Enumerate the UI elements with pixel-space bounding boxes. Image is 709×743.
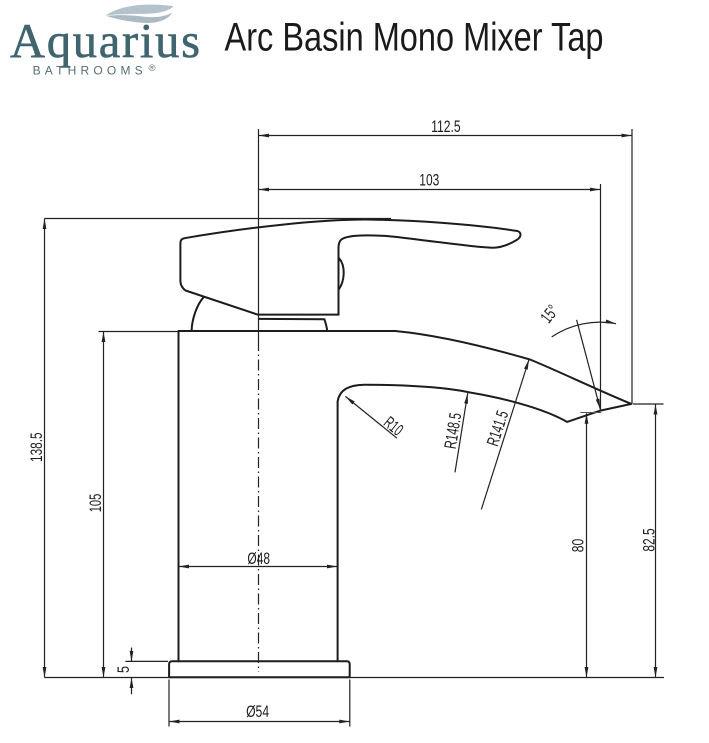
svg-text:138.5: 138.5 — [27, 432, 46, 462]
svg-text:Ø48: Ø48 — [247, 549, 270, 568]
svg-text:Ø54: Ø54 — [246, 702, 269, 721]
svg-text:Arc Basin Mono Mixer Tap: Arc Basin Mono Mixer Tap — [225, 16, 604, 60]
svg-text:R141.5: R141.5 — [483, 408, 512, 448]
svg-text:®: ® — [149, 63, 156, 74]
svg-text:Aquarius: Aquarius — [10, 15, 200, 68]
svg-text:105: 105 — [86, 494, 105, 513]
svg-text:80: 80 — [569, 539, 588, 553]
svg-text:103: 103 — [419, 171, 439, 190]
svg-text:R148.5: R148.5 — [441, 412, 465, 451]
svg-text:82.5: 82.5 — [640, 528, 659, 551]
svg-text:R10: R10 — [380, 413, 407, 440]
svg-text:112.5: 112.5 — [431, 117, 461, 136]
svg-text:5: 5 — [114, 666, 133, 673]
svg-text:15°: 15° — [537, 301, 563, 326]
svg-text:BATHROOMS: BATHROOMS — [33, 64, 147, 78]
